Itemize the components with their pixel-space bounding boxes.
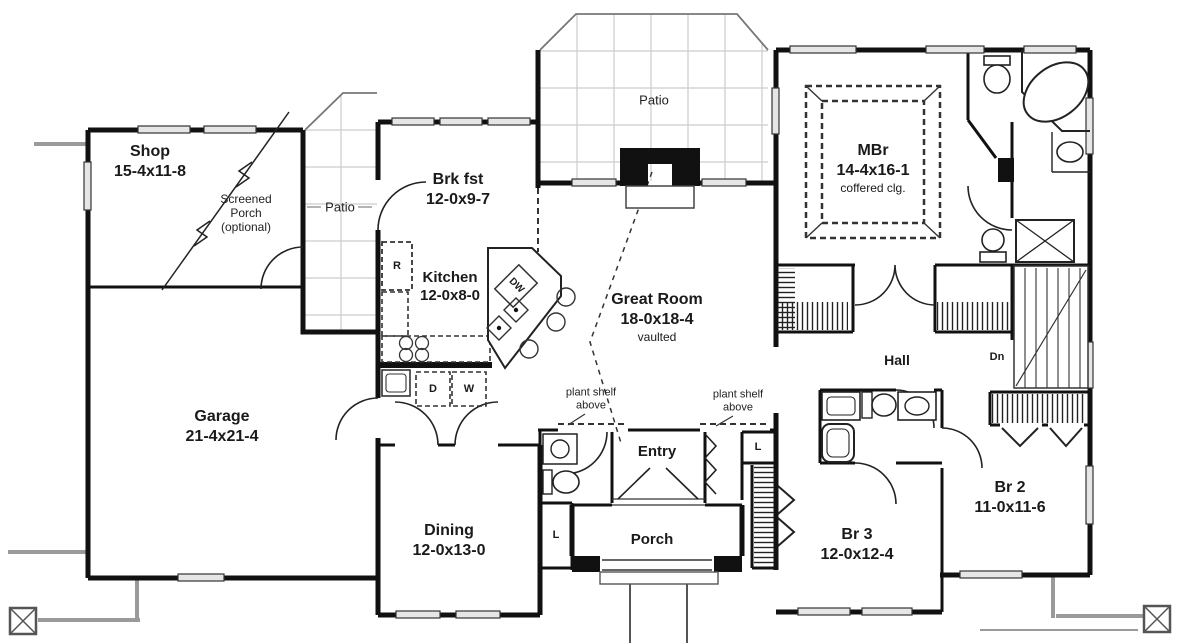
washer-label: W (464, 383, 474, 395)
room-label-br3: Br 3 12-0x12-4 (821, 525, 894, 565)
porch-name: Porch (631, 531, 674, 549)
refrigerator-label: R (393, 260, 401, 272)
stoop (600, 572, 718, 584)
stairs-dn-label: Dn (990, 351, 1005, 363)
mbr-dims: 14-4x16-1 (837, 161, 910, 181)
room-label-shop: Shop 15-4x11-8 (114, 142, 186, 182)
plant-shelf-right-line1: plant shelf (713, 389, 763, 402)
plant-shelf-label-left: plant shelf above (566, 387, 616, 412)
room-label-hall: Hall (884, 352, 910, 368)
master-bath-door (968, 186, 1012, 230)
great-room-name: Great Room (611, 290, 703, 310)
toilet-tank (862, 392, 872, 418)
dining-name: Dining (413, 521, 486, 541)
toilet (984, 65, 1010, 93)
counter-south (382, 336, 490, 362)
dining-openings (395, 402, 498, 445)
screened-porch-door (261, 247, 303, 289)
sink (905, 397, 929, 415)
kitchen-dims: 12-0x8-0 (420, 287, 480, 305)
linen-label-dining: L (553, 529, 560, 541)
mbr-note: coffered clg. (837, 181, 910, 195)
counter-west (382, 292, 408, 336)
brkfst-name: Brk fst (426, 170, 490, 190)
garage-dims: 21-4x21-4 (186, 427, 259, 447)
dn-text: Dn (990, 351, 1005, 363)
stool (520, 340, 538, 358)
porch-details (572, 468, 742, 643)
br2-closet-doors (1002, 428, 1082, 446)
hall-bath-fixtures (822, 392, 936, 462)
great-room-dims: 18-0x18-4 (611, 310, 703, 330)
floor-plan-drawing (0, 0, 1180, 643)
screened-porch-line3: (optional) (220, 220, 271, 234)
room-label-br2: Br 2 11-0x11-6 (974, 478, 1045, 518)
plant-shelf-left-line2: above (566, 399, 616, 412)
entry-closet-bifold (705, 434, 716, 494)
room-label-kitchen: Kitchen 12-0x8-0 (420, 269, 480, 305)
stairs (1014, 266, 1088, 388)
hall-name: Hall (884, 352, 910, 368)
front-double-door (618, 468, 698, 499)
mbr-double-door (855, 265, 935, 305)
wall-jamb (998, 158, 1014, 182)
porch-pier (714, 556, 742, 572)
br3-dims: 12-0x12-4 (821, 545, 894, 565)
shop-dims: 15-4x11-8 (114, 162, 186, 182)
plant-shelf-left-line1: plant shelf (566, 387, 616, 400)
patio-door (378, 182, 426, 230)
pedestal-sink (982, 229, 1004, 251)
patio-left-name: Patio (325, 200, 355, 215)
hearth (626, 186, 694, 208)
linen-entry-text: L (755, 441, 762, 453)
br2-name: Br 2 (974, 478, 1045, 498)
room-label-entry: Entry (638, 443, 676, 461)
sink (551, 440, 569, 458)
linen-dining-text: L (553, 529, 560, 541)
walkway (630, 584, 687, 643)
br2-dims: 11-0x11-6 (974, 498, 1045, 518)
great-room-note: vaulted (611, 330, 703, 344)
br3-closet-doors (778, 486, 794, 546)
entry-name: Entry (638, 443, 676, 461)
br2-door (942, 428, 982, 468)
floor-plan: Shop 15-4x11-8 Screened Porch (optional)… (0, 0, 1180, 643)
br3-door (855, 463, 896, 504)
fireplace (620, 148, 700, 208)
garage-door (336, 398, 378, 440)
master-bath-fixtures (980, 50, 1100, 262)
dryer-label: D (429, 383, 437, 395)
brkfst-dims: 12-0x9-7 (426, 190, 490, 210)
toilet-tank (543, 470, 552, 494)
garage-name: Garage (186, 407, 259, 427)
room-label-mbr: MBr 14-4x16-1 coffered clg. (837, 141, 910, 195)
front-threshold (612, 499, 705, 505)
toilet-tank (984, 56, 1010, 65)
br3-name: Br 3 (821, 525, 894, 545)
room-label-brkfst: Brk fst 12-0x9-7 (426, 170, 490, 210)
patio-top-name: Patio (639, 93, 669, 108)
room-label-porch: Porch (631, 531, 674, 549)
island (488, 248, 561, 368)
powder-room-fixtures (543, 434, 579, 494)
kitchen-fixtures (382, 242, 575, 368)
linen-label-entry: L (755, 441, 762, 453)
room-label-great-room: Great Room 18-0x18-4 vaulted (611, 290, 703, 344)
toilet (553, 471, 579, 493)
room-label-patio-top: Patio (639, 93, 669, 108)
screened-porch-line1: Screened (220, 192, 271, 206)
mbr-name: MBr (837, 141, 910, 161)
sink (1057, 142, 1083, 162)
stool (547, 313, 565, 331)
plant-shelf-label-right: plant shelf above (713, 389, 763, 414)
w-text: W (464, 383, 474, 395)
room-label-screened-porch: Screened Porch (optional) (220, 192, 271, 234)
toilet (872, 394, 896, 416)
kitchen-name: Kitchen (420, 269, 480, 287)
room-label-garage: Garage 21-4x21-4 (186, 407, 259, 447)
dining-dims: 12-0x13-0 (413, 541, 486, 561)
screened-porch-line2: Porch (220, 206, 271, 220)
d-text: D (429, 383, 437, 395)
porch-pier (572, 556, 600, 572)
room-label-patio-left: Patio (325, 200, 355, 215)
room-label-dining: Dining 12-0x13-0 (413, 521, 486, 561)
plant-shelf-right-line2: above (713, 401, 763, 414)
r-text: R (393, 260, 401, 272)
shop-name: Shop (114, 142, 186, 162)
